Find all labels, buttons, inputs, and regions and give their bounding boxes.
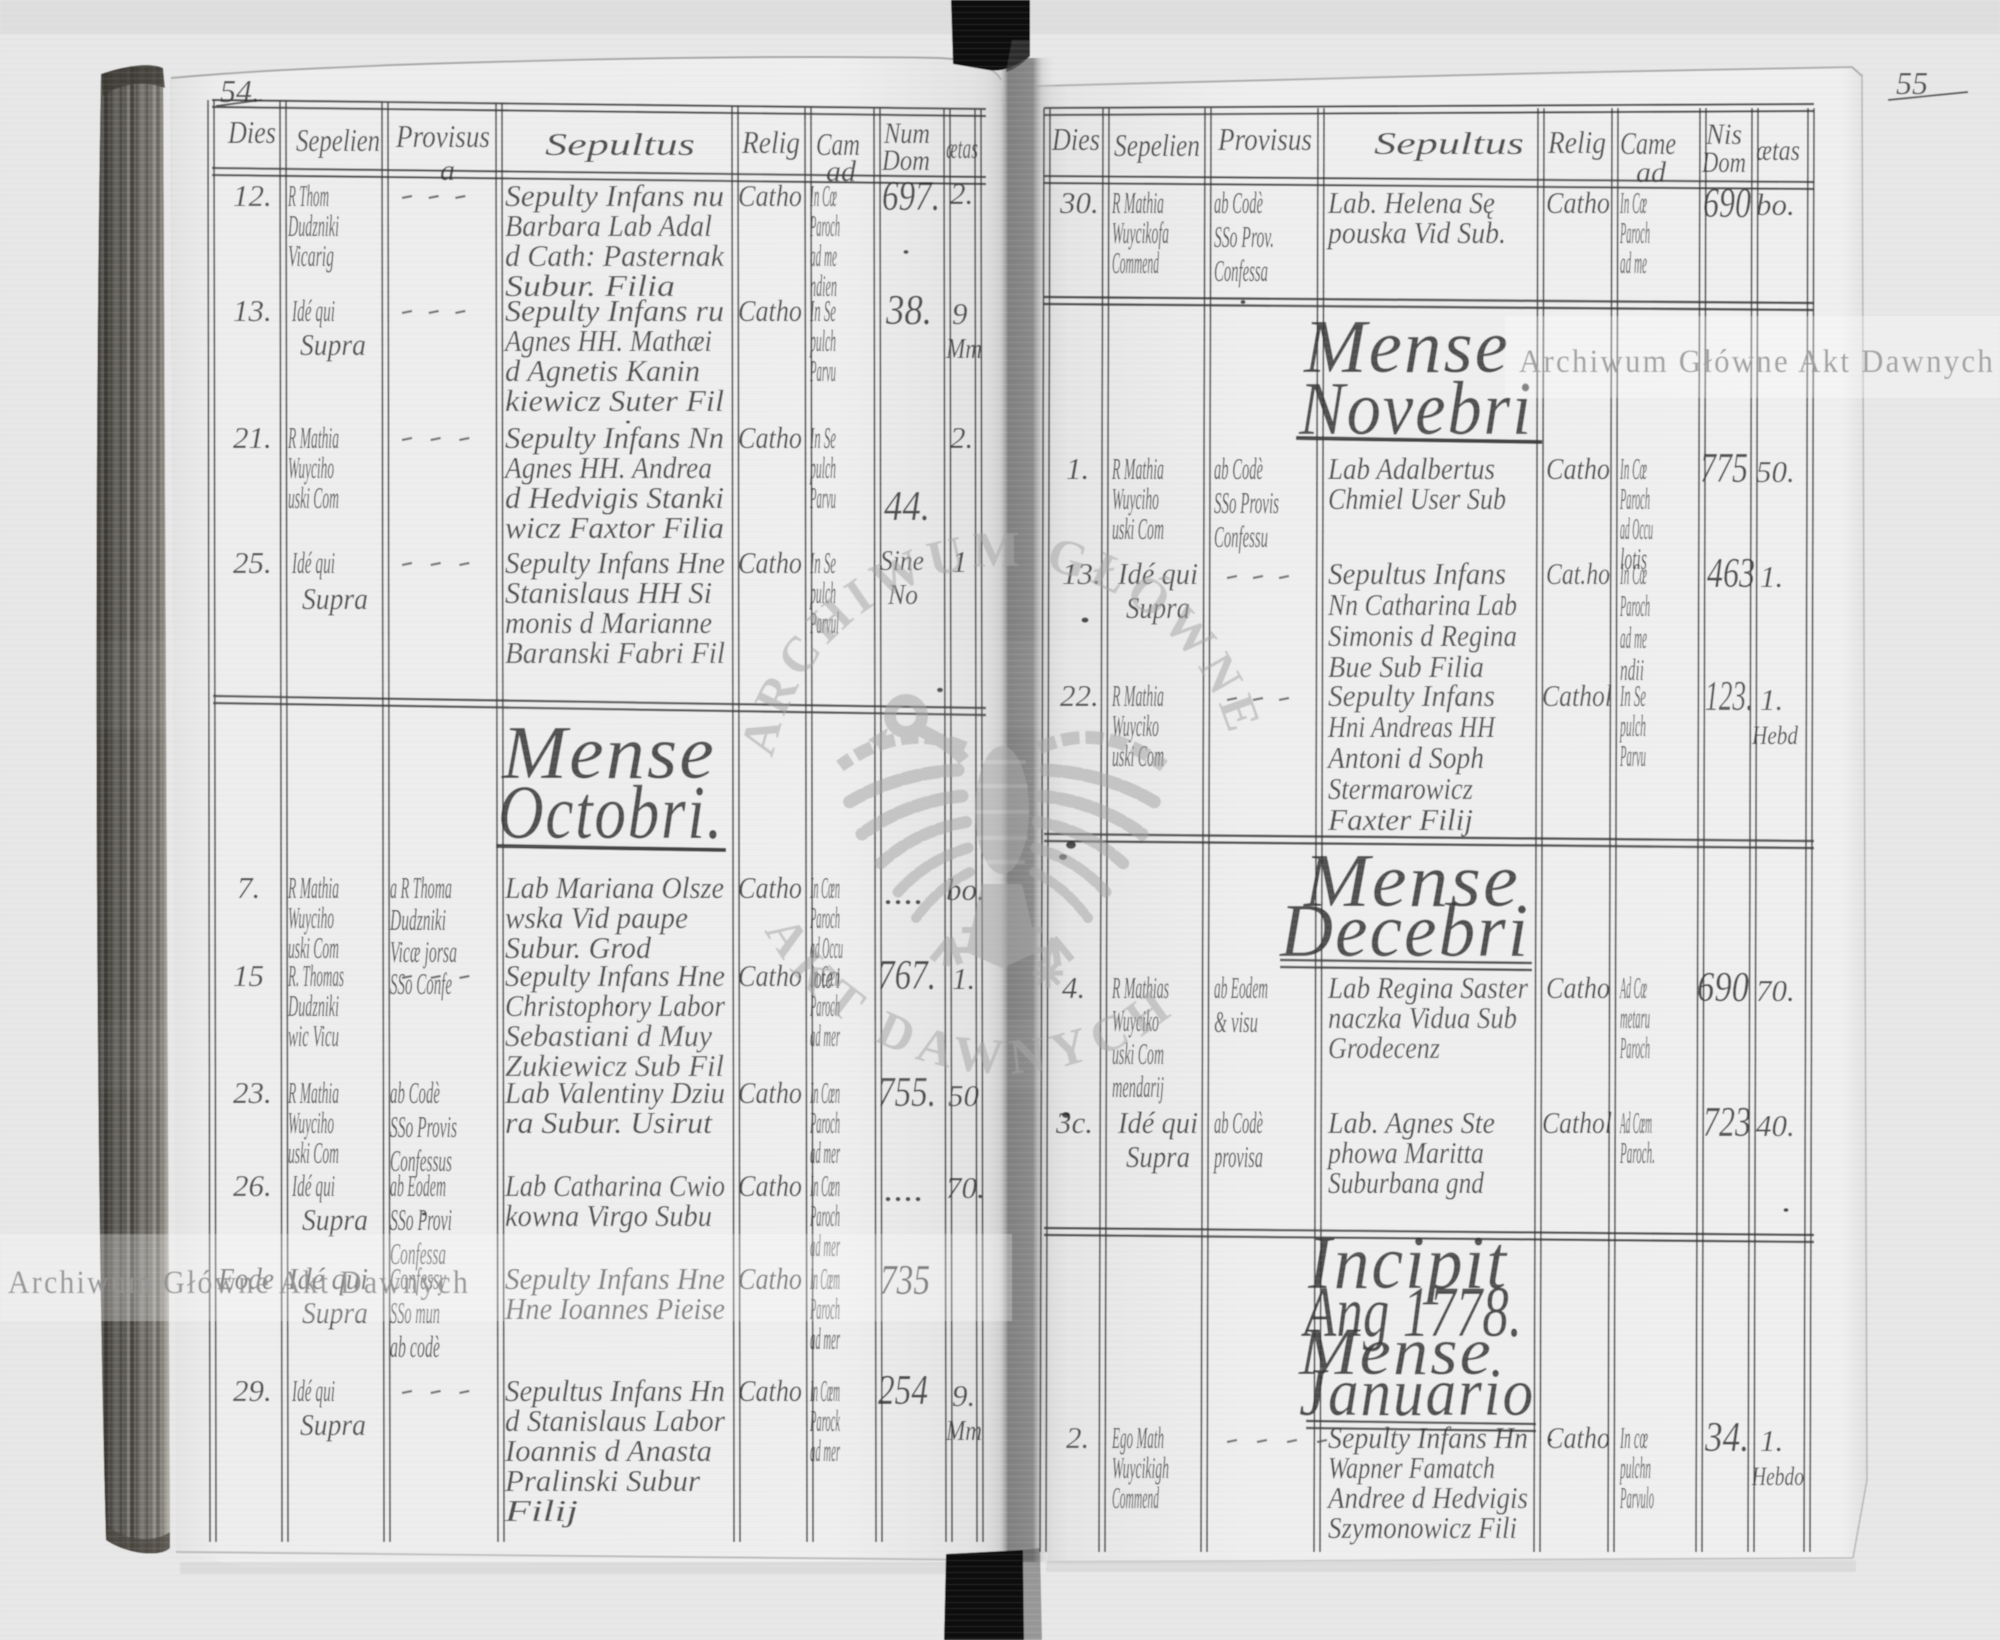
svg-text:Archiwum Główne Akt Dawnych: Archiwum Główne Akt Dawnych bbox=[8, 1265, 470, 1301]
svg-text:Archiwum Główne Akt Dawnych: Archiwum Główne Akt Dawnych bbox=[1519, 344, 1995, 380]
